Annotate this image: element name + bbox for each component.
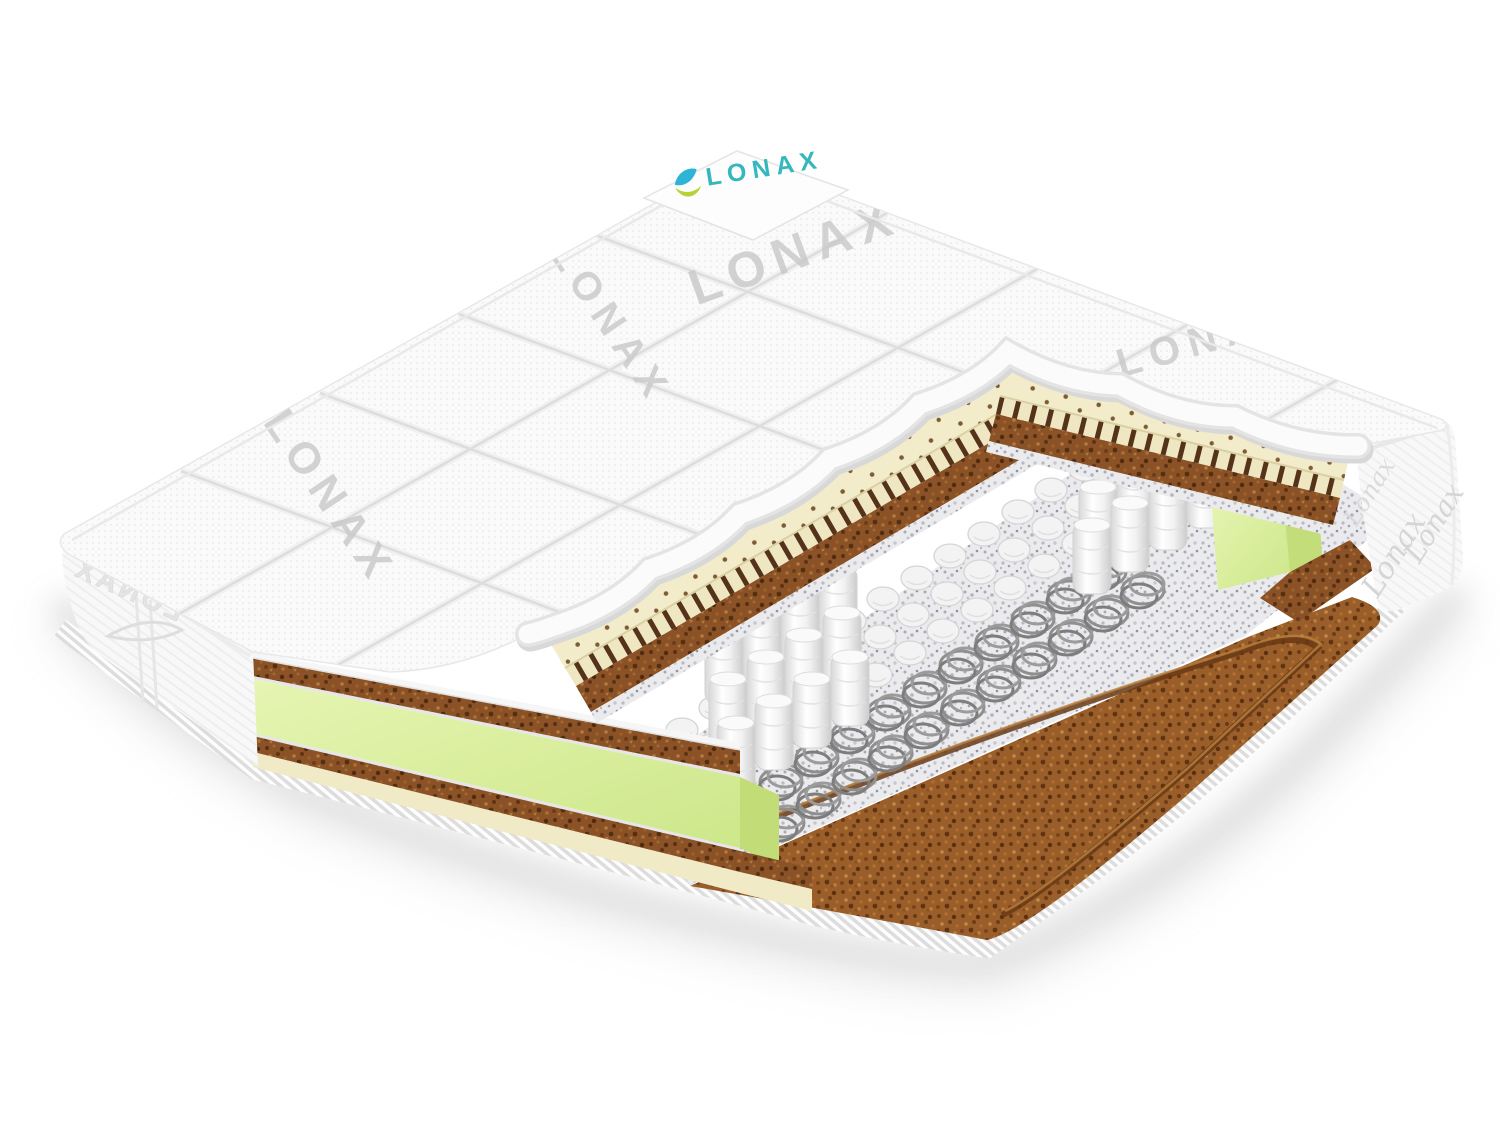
watermark-text: LONAX — [1275, 255, 1443, 337]
mattress-cutaway-render: LONAX Lonax Lonax Lonax — [0, 0, 1500, 1125]
